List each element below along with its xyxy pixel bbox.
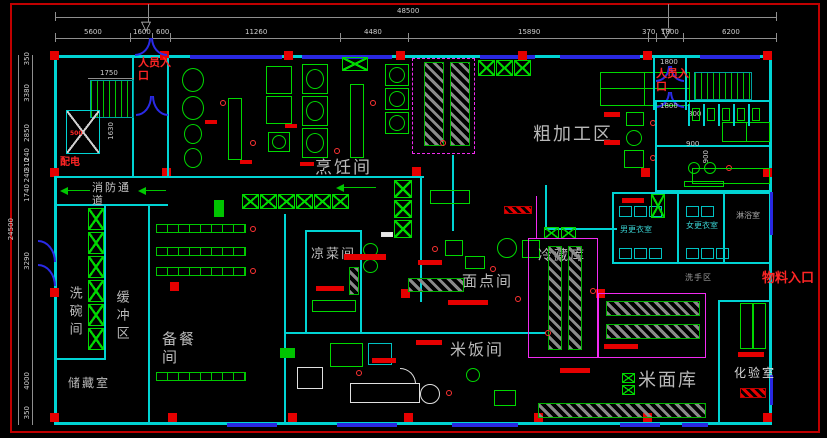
wall-outer-bottom (54, 422, 772, 425)
red-tag (240, 160, 252, 164)
item-tag (545, 330, 551, 336)
sink-table (296, 194, 313, 209)
sink-table (278, 194, 295, 209)
shower-label: 淋浴室 (736, 210, 760, 221)
dim-tick (340, 33, 341, 42)
women-changing-label: 女更衣室 (686, 220, 718, 231)
window-segment (560, 55, 640, 59)
wall-changing-top (612, 192, 770, 194)
dim-tick (776, 12, 777, 21)
window-segment (770, 192, 773, 235)
column-marker (763, 413, 772, 422)
work-table (312, 300, 356, 312)
shelf-strip-bottom (538, 403, 706, 418)
buffer-label: 缓冲区 (113, 290, 129, 344)
wash-table (692, 168, 770, 184)
item-tag (356, 370, 362, 376)
dim-corridor: 900 (686, 141, 699, 148)
dim-tick (130, 33, 131, 42)
locker (686, 206, 699, 217)
item-tag (590, 288, 596, 294)
sink-table (260, 194, 277, 209)
mixer (497, 238, 517, 258)
wall-buffer-right (148, 204, 150, 422)
dim-tick (170, 33, 171, 42)
dim-left: 2850 (24, 124, 31, 142)
window-segment (337, 423, 397, 427)
dish-rack (88, 280, 104, 302)
small-equipment (494, 390, 516, 406)
window-segment (700, 55, 760, 59)
fire-exit-arrow (338, 187, 376, 188)
power-room-label: 配电 (60, 157, 80, 169)
wall-rough-divider (545, 185, 547, 230)
item-tag (432, 246, 438, 252)
lab-table (740, 388, 766, 398)
equipment-box (465, 256, 485, 269)
lab-cabinet-divider (752, 303, 754, 349)
rack-box (394, 180, 412, 198)
cooker-ring (306, 133, 324, 153)
shelf-room-divider (536, 196, 537, 238)
dim-seg: 15890 (518, 29, 540, 36)
stall-divider (703, 104, 705, 126)
wall-changing-mid (677, 192, 679, 264)
red-tag (205, 120, 217, 124)
stall-divider (748, 104, 750, 126)
dim-left: 1740 (24, 184, 31, 202)
dim-left: 4000 (24, 372, 31, 390)
locker (634, 206, 647, 217)
column-marker (412, 167, 421, 176)
dim-seg: 6200 (722, 29, 740, 36)
work-table (228, 98, 242, 160)
column-marker (763, 51, 772, 60)
column-marker (50, 288, 59, 297)
red-tag (285, 124, 297, 128)
dim-elevator-500: 500 (70, 131, 83, 138)
dim-seg: 11260 (245, 29, 267, 36)
item-tag (220, 100, 226, 106)
locker (634, 248, 647, 259)
dish-rack (88, 232, 104, 254)
item-tag (334, 148, 340, 154)
wall-outer-left (54, 55, 57, 425)
steamer-cabinet (350, 383, 420, 403)
cooking-label: 烹饪间 (315, 158, 372, 178)
lab-label: 化验室 (734, 366, 776, 380)
wall-toilet-mid (655, 145, 772, 147)
door-arc (135, 38, 151, 56)
sheet-border-bottom (10, 431, 820, 433)
pastry-label: 面点间 (462, 272, 513, 290)
wall-toilet-bottom (655, 190, 772, 192)
dim-left: 350 (24, 52, 31, 65)
wall-toilet-top (655, 100, 772, 102)
dim-stair-width: 1750 (100, 70, 118, 77)
window-segment (227, 423, 277, 427)
red-tag (604, 112, 620, 117)
fire-exit-arrow (140, 190, 166, 191)
dish-rack (88, 304, 104, 326)
column-marker (404, 413, 413, 422)
rack-box (394, 200, 412, 218)
locker (701, 248, 714, 259)
red-tag (622, 198, 644, 203)
dim-seg: 370 (642, 29, 655, 36)
column-marker (288, 413, 297, 422)
sink-table (242, 194, 259, 209)
window-segment (682, 423, 708, 427)
red-tag (738, 352, 764, 357)
sheet-border-top (10, 3, 820, 5)
shelf-row (156, 247, 246, 256)
round-cooker (184, 124, 202, 144)
dish-rack (88, 256, 104, 278)
wall-storage-top (54, 358, 106, 360)
item-tag (515, 296, 521, 302)
column-marker (396, 51, 405, 60)
cad-floor-plan: 48500 5600 1600 600 11260 4480 15890 370… (0, 0, 827, 438)
wall-changing-left (612, 192, 614, 264)
washer-drum (389, 67, 405, 83)
shelf-strip (349, 267, 359, 295)
washer-drum (389, 91, 405, 107)
door-arc (136, 96, 152, 116)
red-tag (300, 162, 314, 166)
shelf-row (156, 224, 246, 233)
wall-changing-bottom (612, 262, 770, 264)
red-tag (416, 340, 442, 345)
locker (716, 248, 729, 259)
item-tag (250, 140, 256, 146)
rice-flour-store-label: 米面库 (638, 370, 698, 392)
shelf-row (606, 301, 700, 316)
dim-line-left-total (18, 55, 19, 425)
storage-label: 储藏室 (68, 376, 110, 390)
locker (619, 206, 632, 217)
window-segment (190, 55, 282, 59)
locker (649, 248, 662, 259)
range-unit (266, 66, 292, 94)
sink-table (478, 60, 495, 76)
toilet-fixture (692, 108, 700, 121)
dim-tick (55, 12, 56, 21)
dim-seg: 5600 (84, 29, 102, 36)
small-equipment (466, 368, 480, 382)
wash-area-label: 洗手区 (685, 273, 712, 283)
work-table (350, 84, 364, 158)
cooker-ring (306, 69, 324, 89)
stall-divider (718, 104, 720, 126)
steamer-box (297, 367, 323, 389)
item-tag (370, 100, 376, 106)
small-equipment (626, 130, 642, 146)
steamer-drum (420, 384, 440, 404)
entrance-marker-line (148, 4, 149, 22)
sheet-border-right (818, 3, 820, 433)
dim-total: 48500 (397, 8, 419, 15)
wall-lab-top (718, 300, 772, 302)
rack-box (622, 373, 635, 383)
wall-lab-left (718, 300, 720, 422)
red-tag (560, 368, 590, 373)
red-tag (316, 286, 344, 291)
column-marker (50, 51, 59, 60)
shelf-column (568, 246, 582, 350)
shelf-column (424, 62, 444, 146)
rough-processing-label: 粗加工区 (533, 124, 613, 146)
round-cooker (182, 68, 204, 92)
locker (619, 248, 632, 259)
pass-counter (344, 254, 386, 260)
entrance-marker-right: ▽ (661, 27, 671, 40)
locker (686, 248, 699, 259)
wall-prep-right (284, 214, 286, 422)
dim-vestibule2: 1800 (660, 103, 678, 110)
entrance-label-left: 人员入口 (138, 57, 174, 82)
wall-dishwash-right (104, 204, 106, 360)
red-tag (418, 260, 442, 265)
sink-row (430, 190, 470, 204)
wall-colddish-top (305, 230, 362, 232)
dim-tick (55, 33, 56, 42)
red-counter (504, 206, 532, 214)
dim-line-left-seg (32, 55, 33, 425)
column-marker (643, 51, 652, 60)
dim-seg: 600 (156, 29, 169, 36)
dim-tick (683, 33, 684, 42)
sink-table (332, 194, 349, 209)
toilet-fixture (722, 108, 730, 121)
sink-table (314, 194, 331, 209)
item-tag (440, 140, 446, 146)
dim-tick (776, 33, 777, 42)
shelf-row (156, 372, 246, 381)
column-marker (284, 51, 293, 60)
entrance-marker-left: ▽ (141, 20, 151, 33)
rack-box (651, 194, 665, 218)
column-marker (170, 282, 179, 291)
toilet-fixture (707, 108, 715, 121)
shelf-row (606, 324, 700, 339)
dim-line-stair (88, 78, 134, 79)
prep-table-divider (746, 122, 747, 142)
red-tag (372, 358, 396, 363)
cooker-ring (272, 135, 286, 149)
column-marker (641, 168, 650, 177)
dim-elevator: 1630 (108, 122, 115, 140)
wall-pastry-bottom (284, 332, 546, 334)
dim-vestibule: 1800 (660, 59, 678, 66)
cold-unit (363, 259, 378, 273)
sink-table (514, 60, 531, 76)
rice-room-label: 米饭间 (450, 340, 504, 359)
toilet-fixture (752, 108, 760, 121)
cooker-ring (306, 101, 324, 121)
column-marker (518, 51, 527, 60)
dim-tick (408, 33, 409, 42)
rack-box (394, 220, 412, 238)
stall-divider (688, 104, 690, 126)
wall-colddish-right (360, 230, 362, 332)
fire-corridor-label: 消防通道 (92, 181, 132, 207)
dim-left: 3290 (24, 252, 31, 270)
shelf-column (450, 62, 470, 146)
item-tag (490, 266, 496, 272)
dim-tick (656, 33, 657, 42)
round-cooker (182, 96, 204, 120)
shelf-row (156, 267, 246, 276)
red-tag (448, 300, 488, 305)
dim-left: 350 (24, 406, 31, 419)
item-tag (250, 226, 256, 232)
red-tag (604, 140, 620, 145)
item-tag (250, 268, 256, 274)
item-tag (446, 390, 452, 396)
window-segment (452, 423, 518, 427)
dishwashing-label: 洗碗间 (66, 286, 82, 340)
sink-table (496, 60, 513, 76)
equipment-box (445, 240, 463, 256)
range-unit (266, 96, 292, 124)
fire-exit-arrow (62, 190, 90, 191)
column-marker (50, 413, 59, 422)
wall-colddish-left (305, 230, 307, 332)
dish-rack (88, 208, 104, 230)
red-tag (604, 344, 638, 349)
stall-divider (733, 104, 735, 126)
rack-box (622, 385, 635, 395)
stairs-top-right (694, 72, 752, 100)
pastry-counter (408, 278, 464, 292)
door-arc (152, 96, 168, 116)
window-segment (620, 423, 660, 427)
material-entrance-label: 物料入口 (762, 272, 814, 287)
small-equipment (624, 150, 644, 168)
door-arc-white (400, 368, 416, 384)
dim-left-total: 24500 (8, 218, 15, 240)
dish-rack (88, 328, 104, 350)
dim-seg: 4480 (364, 29, 382, 36)
dim-left: 3380 (24, 84, 31, 102)
equipment-block (214, 200, 224, 217)
door-arc (151, 38, 167, 56)
pass-window (381, 232, 393, 237)
food-prep-label: 备餐间 (162, 330, 200, 366)
entrance-marker-line (668, 4, 669, 28)
men-changing-label: 男更衣室 (620, 224, 652, 235)
sink-table (342, 57, 368, 71)
equipment-block (280, 348, 295, 358)
toilet-fixture (737, 108, 745, 121)
locker (701, 206, 714, 217)
round-cooker (184, 148, 202, 168)
prep-table-divider (644, 72, 645, 106)
cold-storage-room (528, 238, 598, 358)
rice-equipment (330, 343, 363, 367)
column-marker (168, 413, 177, 422)
small-equipment (626, 112, 644, 126)
dim-left: 240 (24, 169, 31, 182)
washer-drum (389, 115, 405, 131)
entrance-label-right: 人员入口 (656, 68, 692, 93)
